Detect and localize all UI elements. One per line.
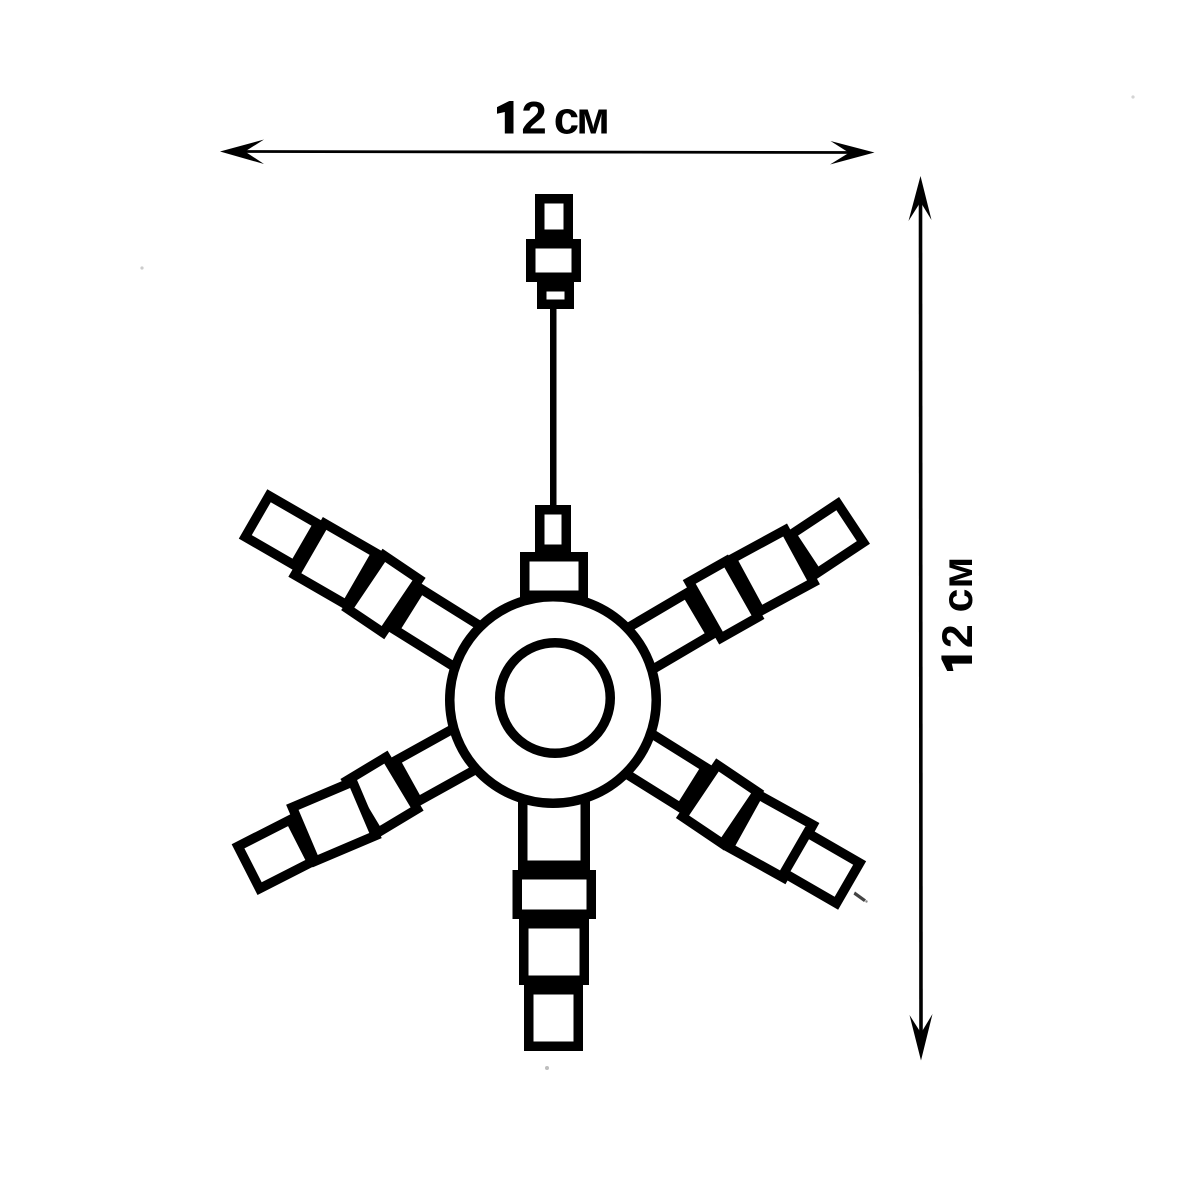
svg-text:2 см: 2 см <box>934 557 982 648</box>
svg-text:2 см: 2 см <box>521 93 607 144</box>
